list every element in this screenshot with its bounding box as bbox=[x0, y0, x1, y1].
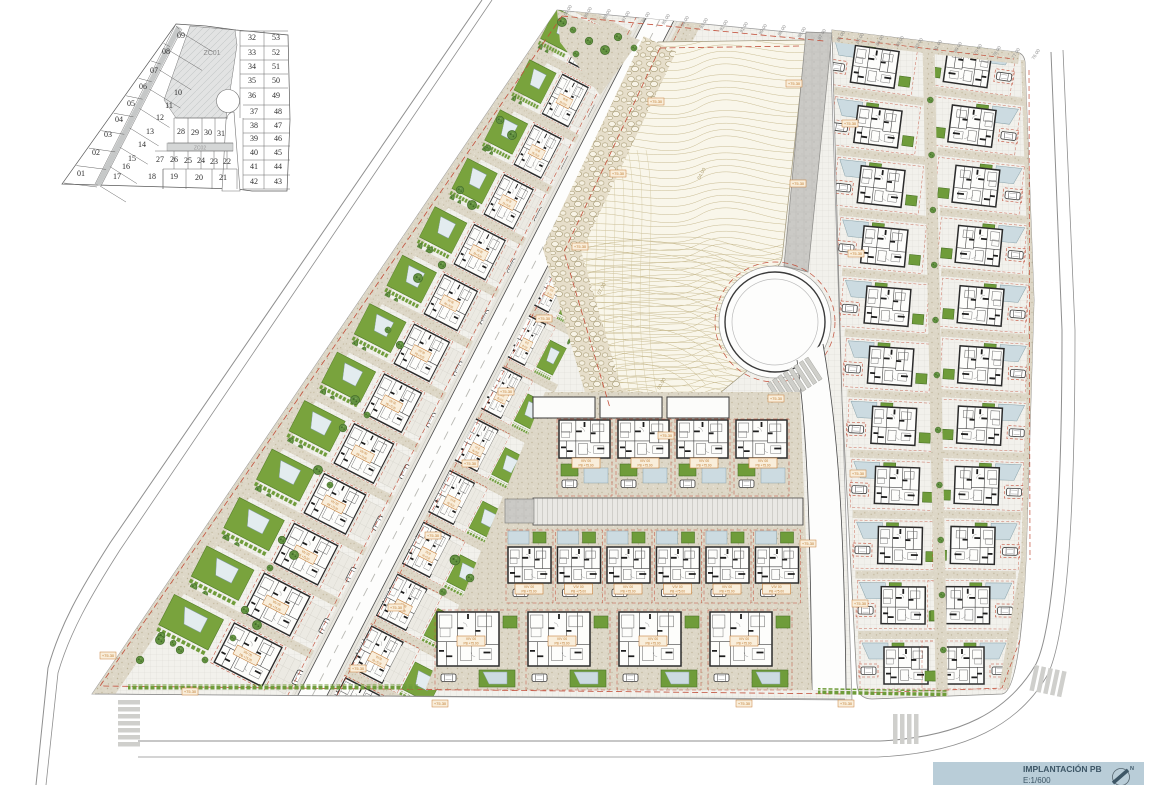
svg-text:+75.30: +75.30 bbox=[464, 461, 477, 466]
svg-text:01: 01 bbox=[77, 169, 85, 178]
svg-text:39: 39 bbox=[250, 134, 258, 143]
svg-text:+75.30: +75.30 bbox=[850, 251, 863, 256]
svg-text:08: 08 bbox=[162, 47, 170, 56]
svg-text:+75.30: +75.30 bbox=[500, 389, 513, 394]
svg-text:+75.30: +75.30 bbox=[770, 396, 783, 401]
svg-text:19: 19 bbox=[170, 172, 178, 181]
svg-text:22: 22 bbox=[223, 157, 231, 166]
svg-text:38: 38 bbox=[250, 121, 258, 130]
svg-text:41: 41 bbox=[250, 162, 258, 171]
svg-text:09: 09 bbox=[177, 31, 185, 40]
svg-text:ZC01: ZC01 bbox=[203, 50, 220, 57]
svg-text:+75.30: +75.30 bbox=[792, 181, 805, 186]
svg-text:+75.30: +75.30 bbox=[434, 701, 447, 706]
svg-text:+75.30: +75.30 bbox=[427, 533, 440, 538]
svg-text:44: 44 bbox=[274, 162, 282, 171]
svg-text:10: 10 bbox=[174, 88, 182, 97]
svg-text:17: 17 bbox=[113, 172, 121, 181]
svg-text:+75.30: +75.30 bbox=[184, 689, 197, 694]
svg-text:+75.30: +75.30 bbox=[102, 653, 115, 658]
svg-text:+75.30: +75.30 bbox=[612, 171, 625, 176]
svg-text:50: 50 bbox=[272, 76, 280, 85]
svg-text:47: 47 bbox=[274, 121, 282, 130]
svg-text:06: 06 bbox=[139, 82, 147, 91]
svg-text:36: 36 bbox=[248, 91, 256, 100]
svg-text:13: 13 bbox=[146, 127, 154, 136]
svg-text:32: 32 bbox=[248, 33, 256, 42]
svg-text:45: 45 bbox=[274, 148, 282, 157]
svg-text:+75.30: +75.30 bbox=[660, 433, 673, 438]
svg-text:28: 28 bbox=[177, 127, 185, 136]
svg-text:+75.30: +75.30 bbox=[844, 121, 857, 126]
svg-text:14: 14 bbox=[138, 140, 146, 149]
svg-text:20: 20 bbox=[195, 173, 203, 182]
svg-text:04: 04 bbox=[115, 115, 123, 124]
svg-text:29: 29 bbox=[191, 128, 199, 137]
svg-text:53: 53 bbox=[272, 33, 280, 42]
svg-text:49: 49 bbox=[272, 91, 280, 100]
svg-text:40: 40 bbox=[250, 148, 258, 157]
svg-text:27: 27 bbox=[156, 155, 164, 164]
svg-text:02: 02 bbox=[92, 148, 100, 157]
svg-text:+75.30: +75.30 bbox=[852, 471, 865, 476]
svg-text:42: 42 bbox=[250, 177, 258, 186]
svg-text:30: 30 bbox=[204, 128, 212, 137]
svg-text:21: 21 bbox=[219, 173, 227, 182]
svg-text:+75.30: +75.30 bbox=[352, 666, 365, 671]
svg-text:43: 43 bbox=[274, 177, 282, 186]
svg-text:25: 25 bbox=[184, 156, 192, 165]
svg-text:+75.30: +75.30 bbox=[390, 605, 403, 610]
svg-text:11: 11 bbox=[165, 101, 173, 110]
svg-text:+75.30: +75.30 bbox=[650, 99, 663, 104]
svg-text:24: 24 bbox=[197, 156, 205, 165]
svg-text:+75.30: +75.30 bbox=[854, 601, 867, 606]
svg-text:37: 37 bbox=[250, 107, 258, 116]
svg-text:07: 07 bbox=[150, 66, 158, 75]
svg-text:E:1/600: E:1/600 bbox=[1023, 776, 1051, 785]
svg-text:48: 48 bbox=[274, 107, 282, 116]
svg-text:03: 03 bbox=[104, 130, 112, 139]
svg-text:05: 05 bbox=[127, 99, 135, 108]
svg-text:+75.30: +75.30 bbox=[738, 701, 751, 706]
svg-text:+75.30: +75.30 bbox=[538, 316, 551, 321]
svg-text:51: 51 bbox=[272, 62, 280, 71]
svg-text:ZC02: ZC02 bbox=[194, 146, 206, 152]
svg-text:16: 16 bbox=[122, 162, 130, 171]
svg-text:35: 35 bbox=[248, 76, 256, 85]
svg-text:26: 26 bbox=[170, 155, 178, 164]
svg-text:23: 23 bbox=[210, 157, 218, 166]
svg-text:+75.30: +75.30 bbox=[574, 244, 587, 249]
svg-text:12: 12 bbox=[156, 113, 164, 122]
svg-text:+75.30: +75.30 bbox=[788, 81, 801, 86]
svg-text:46: 46 bbox=[274, 134, 282, 143]
svg-text:+75.30: +75.30 bbox=[840, 701, 853, 706]
svg-text:18: 18 bbox=[148, 172, 156, 181]
svg-text:31: 31 bbox=[217, 129, 225, 138]
svg-text:52: 52 bbox=[272, 48, 280, 57]
svg-text:34: 34 bbox=[248, 62, 256, 71]
svg-text:33: 33 bbox=[248, 48, 256, 57]
svg-text:+75.30: +75.30 bbox=[802, 541, 815, 546]
svg-text:N: N bbox=[1130, 766, 1134, 772]
svg-text:IMPLANTACIÓN PB: IMPLANTACIÓN PB bbox=[1023, 763, 1102, 774]
